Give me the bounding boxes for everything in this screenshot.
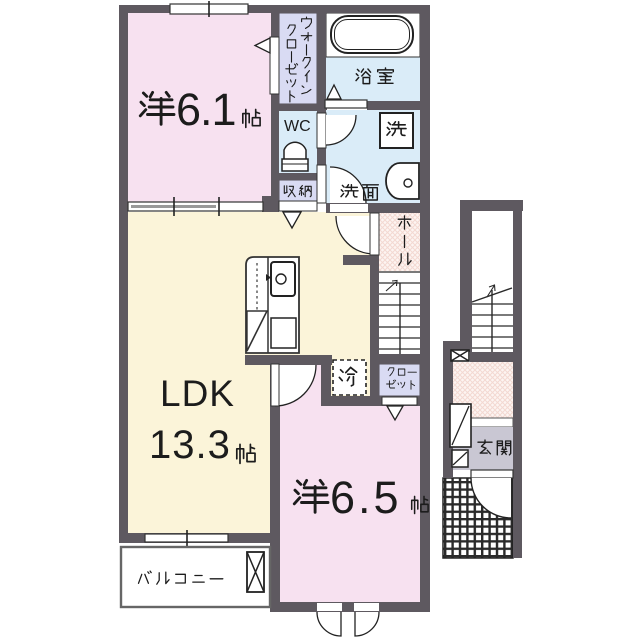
svg-text:13.3: 13.3	[149, 423, 231, 467]
svg-text:6.5: 6.5	[330, 472, 402, 523]
svg-text:6.1: 6.1	[176, 84, 236, 135]
svg-text:WC: WC	[284, 118, 311, 135]
svg-text:LDK: LDK	[160, 373, 235, 414]
